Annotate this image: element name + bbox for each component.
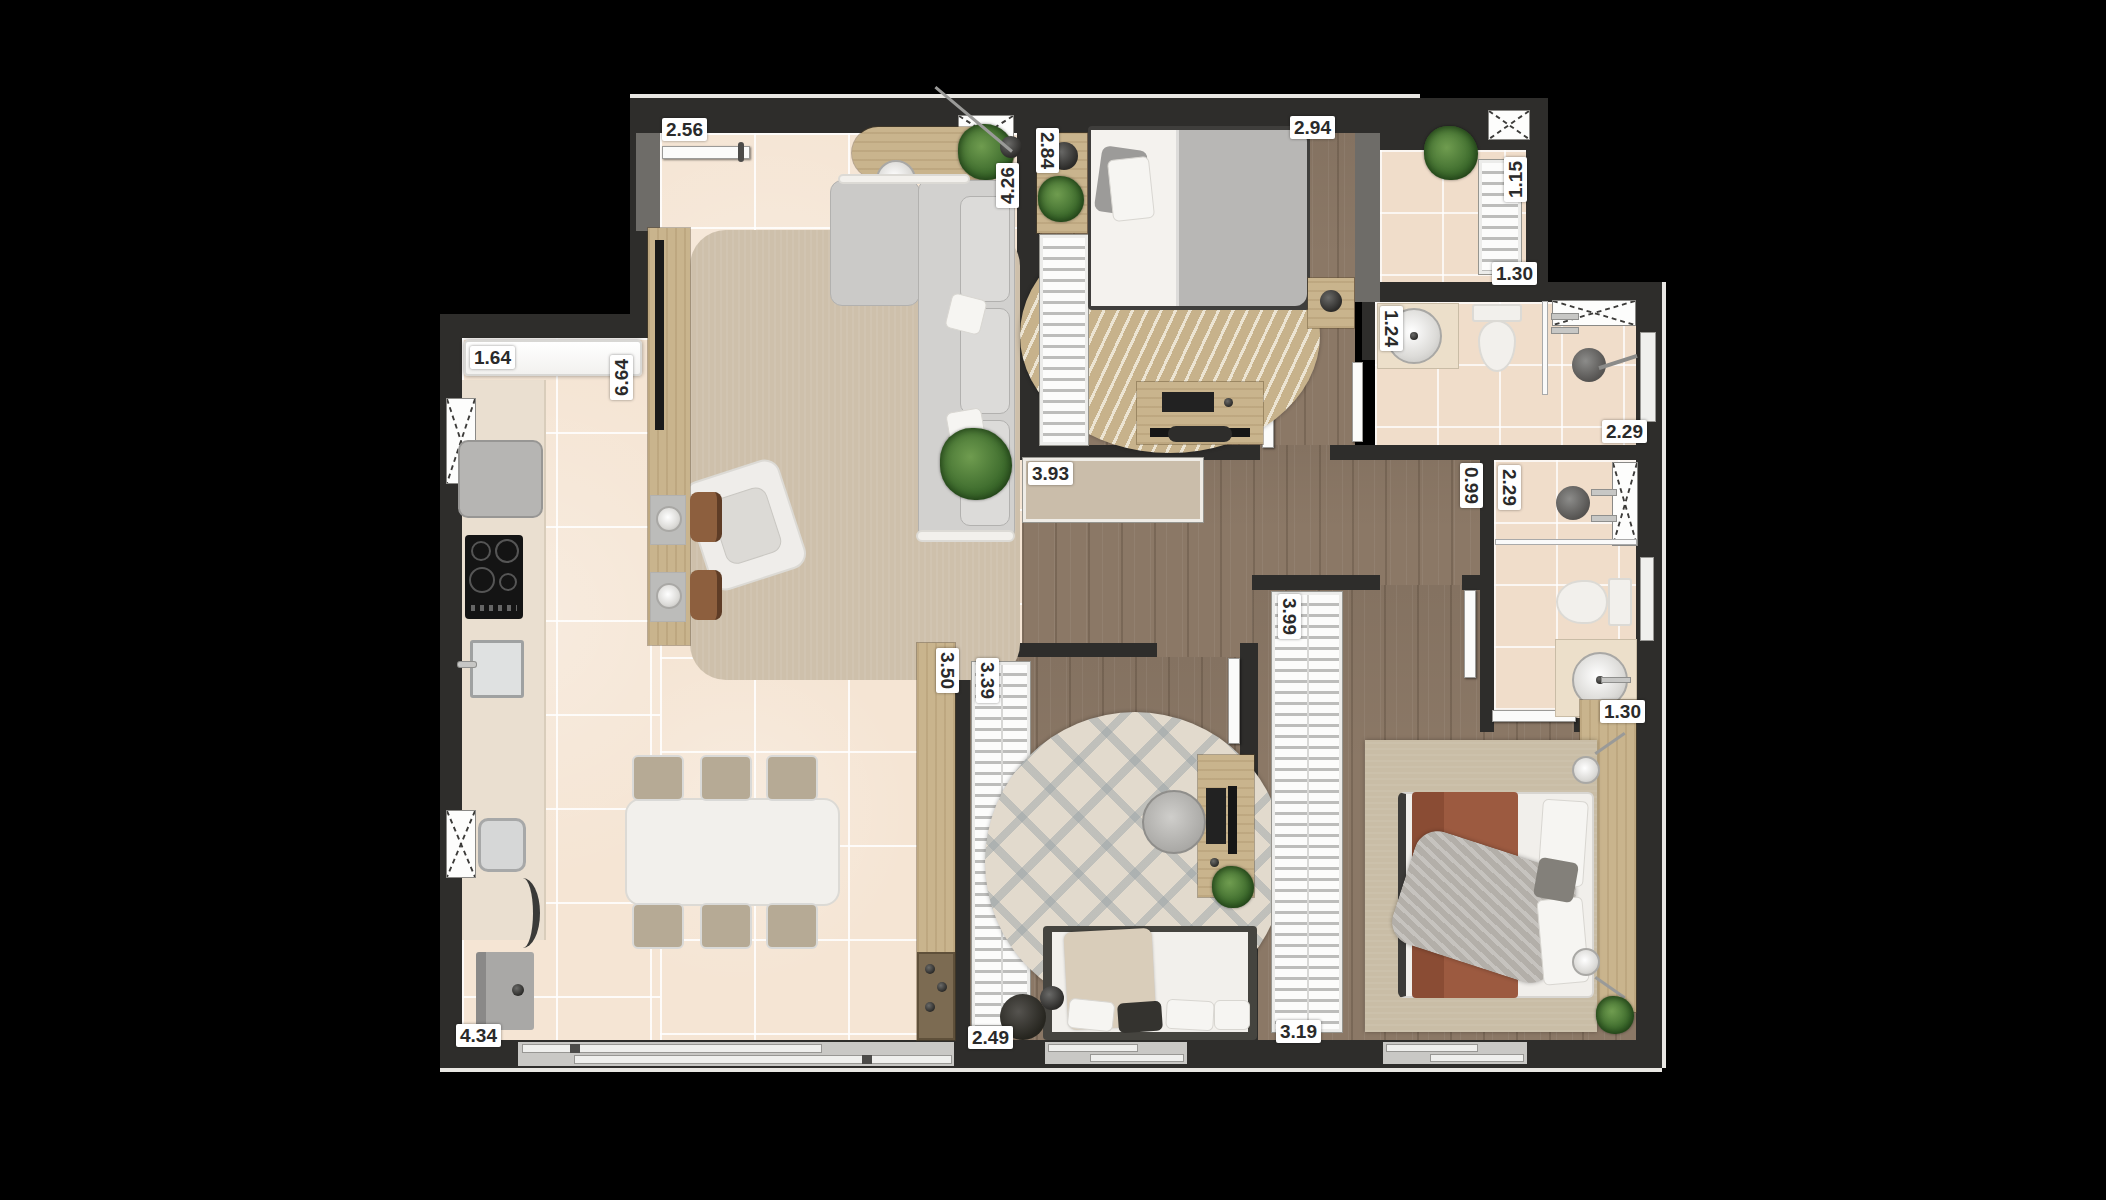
dimension-label-3.99: 3.99 — [1278, 594, 1301, 639]
dimension-label-1.15: 1.15 — [1504, 157, 1527, 202]
dimension-label-1.24: 1.24 — [1380, 306, 1403, 351]
dimension-label-3.93: 3.93 — [1028, 462, 1073, 485]
dimension-label-6.64: 6.64 — [610, 355, 633, 400]
dimension-label-4.34: 4.34 — [456, 1024, 501, 1047]
dimension-label-3.19: 3.19 — [1276, 1020, 1321, 1043]
dimension-label-1.30: 1.30 — [1492, 262, 1537, 285]
dimension-label-2.29: 2.29 — [1498, 465, 1521, 510]
dimension-label-2.56: 2.56 — [662, 118, 707, 141]
dimension-label-2.29: 2.29 — [1602, 420, 1647, 443]
dimension-label-1.64: 1.64 — [470, 346, 515, 369]
dimension-label-2.84: 2.84 — [1036, 128, 1059, 173]
dimension-label-3.39: 3.39 — [976, 658, 999, 703]
dimension-label-0.99: 0.99 — [1460, 463, 1483, 508]
dimension-label-2.49: 2.49 — [968, 1026, 1013, 1049]
dimension-label-4.26: 4.26 — [996, 163, 1019, 208]
dimension-label-1.30: 1.30 — [1600, 700, 1645, 723]
dimension-label-3.50: 3.50 — [936, 648, 959, 693]
floor-plan-canvas: 2.562.842.944.261.151.301.646.641.242.29… — [0, 0, 2106, 1200]
dimension-labels-layer: 2.562.842.944.261.151.301.646.641.242.29… — [0, 0, 2106, 1200]
dimension-label-2.94: 2.94 — [1290, 116, 1335, 139]
